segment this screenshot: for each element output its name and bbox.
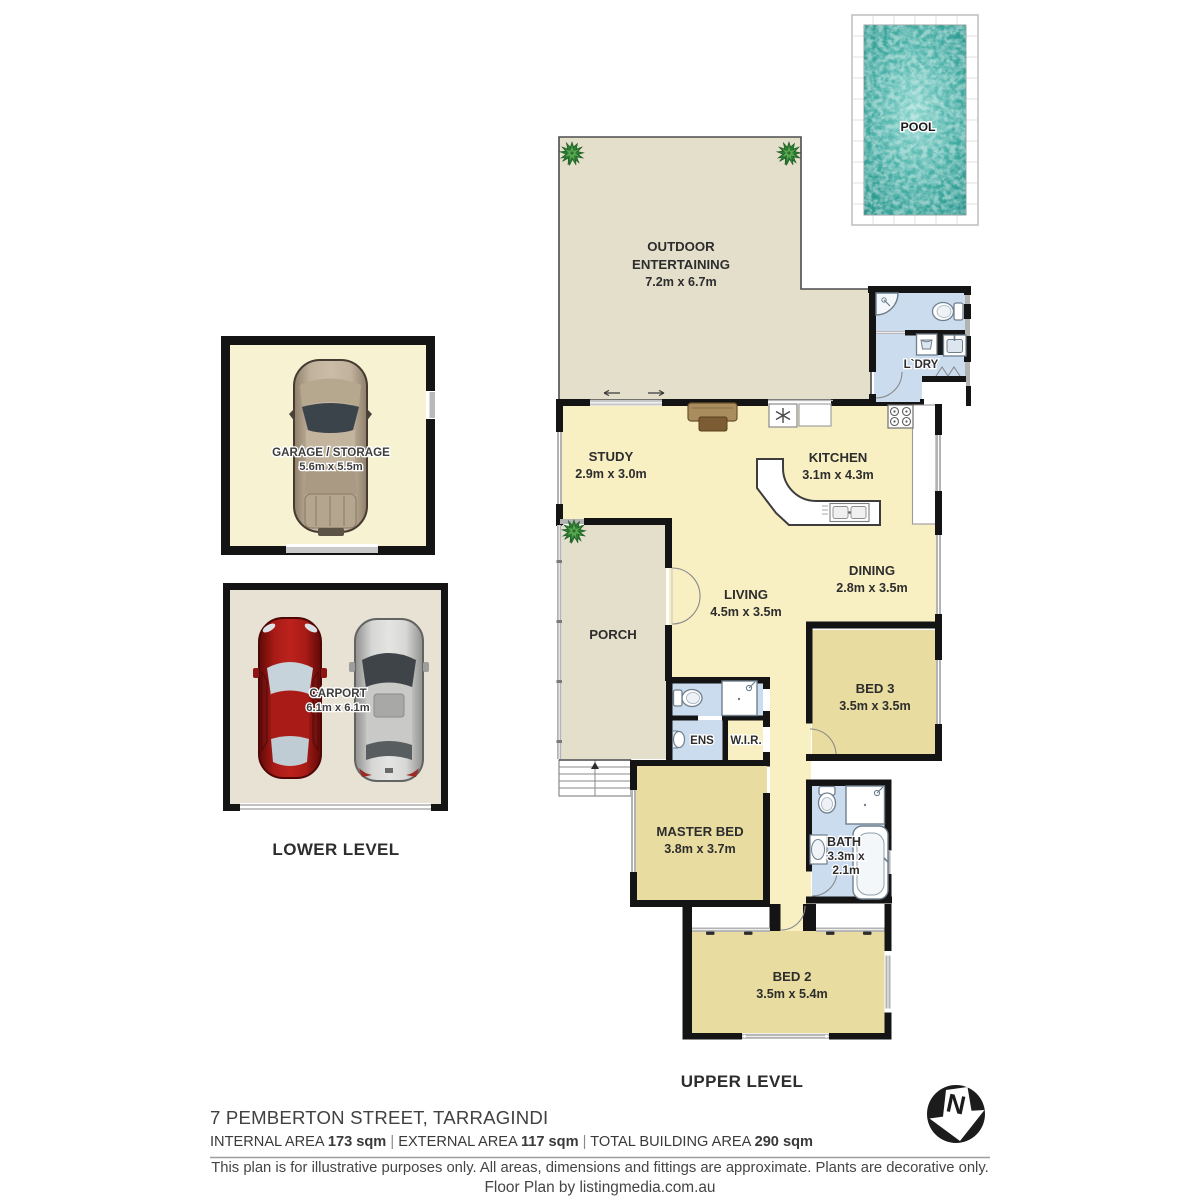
svg-text:KITCHEN: KITCHEN [809, 450, 868, 465]
svg-text:PORCH: PORCH [589, 627, 637, 642]
svg-text:CARPORT: CARPORT [309, 687, 366, 700]
svg-text:INTERNAL AREA 173 sqm | EXTE: INTERNAL AREA 173 sqm | EXTERNAL AREA 11… [210, 1134, 813, 1150]
svg-text:DINING: DINING [849, 563, 895, 578]
svg-text:Floor Plan by listingmedia.com: Floor Plan by listingmedia.com.au [485, 1179, 716, 1196]
svg-text:BED 3: BED 3 [856, 681, 895, 696]
svg-text:3.1m x 4.3m: 3.1m x 4.3m [802, 468, 873, 482]
svg-text:This plan is for illustrative: This plan is for illustrative purposes o… [211, 1160, 989, 1176]
svg-text:OUTDOOR: OUTDOOR [647, 239, 715, 254]
svg-text:6.1m x 6.1m: 6.1m x 6.1m [306, 702, 369, 714]
svg-text:2.8m x 3.5m: 2.8m x 3.5m [836, 581, 907, 595]
svg-text:BED 2: BED 2 [773, 969, 812, 984]
svg-text:L`DRY: L`DRY [904, 359, 939, 371]
svg-text:2.9m x 3.0m: 2.9m x 3.0m [575, 467, 646, 481]
svg-text:7 PEMBERTON STREET, TARRAGINDI: 7 PEMBERTON STREET, TARRAGINDI [210, 1107, 548, 1128]
svg-text:MASTER BED: MASTER BED [656, 824, 743, 839]
svg-text:LOWER LEVEL: LOWER LEVEL [272, 840, 399, 859]
svg-text:GARAGE / STORAGE: GARAGE / STORAGE [272, 446, 390, 459]
svg-text:UPPER LEVEL: UPPER LEVEL [681, 1072, 803, 1091]
svg-text:2.1m: 2.1m [832, 863, 859, 877]
svg-text:3.3m x: 3.3m x [827, 849, 865, 863]
svg-text:W.I.R.: W.I.R. [730, 735, 761, 747]
svg-text:LIVING: LIVING [724, 587, 768, 602]
svg-text:7.2m x 6.7m: 7.2m x 6.7m [645, 275, 716, 289]
svg-text:POOL: POOL [900, 120, 936, 134]
svg-text:ENTERTAINING: ENTERTAINING [632, 257, 730, 272]
svg-text:5.6m x 5.5m: 5.6m x 5.5m [299, 461, 362, 473]
svg-text:STUDY: STUDY [589, 449, 634, 464]
svg-text:3.5m x 5.4m: 3.5m x 5.4m [756, 987, 827, 1001]
svg-text:4.5m x 3.5m: 4.5m x 3.5m [710, 605, 781, 619]
svg-text:ENS: ENS [690, 735, 714, 747]
svg-text:BATH: BATH [827, 835, 861, 849]
svg-text:3.8m x 3.7m: 3.8m x 3.7m [664, 842, 735, 856]
svg-text:3.5m x 3.5m: 3.5m x 3.5m [839, 699, 910, 713]
